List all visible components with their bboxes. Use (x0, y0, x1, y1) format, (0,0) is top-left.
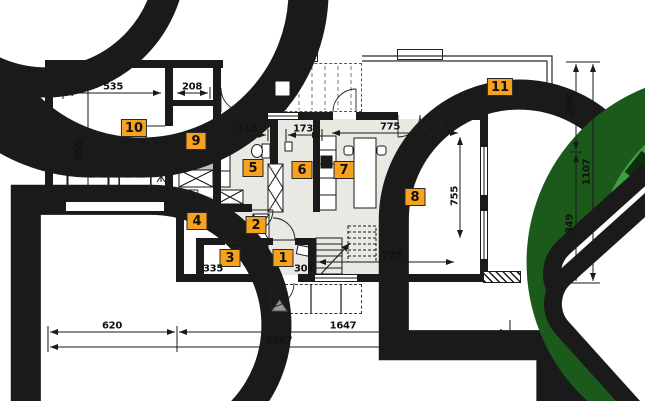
wall-segment (176, 200, 184, 282)
dim-garage-width: 535 (103, 82, 123, 93)
wall-segment (176, 274, 268, 282)
wall-segment (213, 60, 221, 206)
wall-segment (165, 60, 173, 126)
garage-door (65, 201, 165, 212)
room-badge-7: 7 (334, 161, 355, 179)
stairs (316, 226, 376, 278)
porch-posts (311, 284, 341, 313)
dim-right-top: 258 (565, 95, 576, 115)
wall-segment (313, 120, 320, 212)
wall-segment (173, 100, 215, 106)
room-badge-4: 4 (187, 212, 208, 230)
room-badge-8: 8 (405, 188, 426, 206)
terrace-edge-hatch (483, 271, 521, 283)
room-badge-2: 2 (246, 216, 267, 234)
dim-garage-depth: 655 (74, 140, 85, 160)
room-badge-11: 11 (487, 78, 513, 96)
window (267, 112, 299, 120)
room-badge-10: 10 (121, 119, 147, 137)
dim-bottom-right: 1647 (330, 321, 357, 332)
wall-segment (45, 60, 223, 68)
toilet-icon-bath (252, 144, 271, 158)
dim-wc-width: 335 (203, 264, 223, 275)
room-badge-6: 6 (292, 161, 313, 179)
wall-segment (196, 238, 225, 245)
wall-segment (480, 112, 488, 146)
room-badge-5: 5 (243, 159, 264, 177)
dim-right-total: 1107 (582, 159, 593, 186)
window (314, 274, 358, 282)
terrace-slider (480, 146, 488, 196)
wall-segment (213, 204, 252, 212)
wall-segment (165, 148, 173, 206)
wall-box-icon (285, 142, 292, 151)
dim-right-bottom: 849 (565, 214, 576, 234)
wall-segment (245, 112, 267, 120)
wall-segment (299, 112, 333, 120)
room-badge-1: 1 (273, 249, 294, 267)
dim-bottom-left: 620 (102, 321, 122, 332)
dim-entry-width: 301 (294, 264, 314, 275)
dim-bath-width: 315 (237, 124, 257, 135)
wall-segment (358, 274, 483, 282)
room-badge-9: 9 (186, 132, 207, 150)
dim-garage-side: 208 (182, 82, 202, 93)
dim-kitchen-width: 775 (380, 122, 400, 133)
dim-bottom-total: 2267 (266, 336, 293, 347)
wall-segment (45, 60, 53, 208)
wall-segment (480, 196, 488, 210)
dim-living-width: 775 (382, 251, 402, 262)
dim-living-depth: 755 (450, 186, 461, 206)
floor-plan: 1 2 3 4 5 6 7 8 9 10 11 535 208 655 315 … (0, 0, 645, 401)
dim-pantry-width: 173 (293, 124, 313, 135)
terrace-slider (480, 210, 488, 260)
wall-segment (243, 238, 273, 245)
wall-segment (356, 112, 398, 120)
